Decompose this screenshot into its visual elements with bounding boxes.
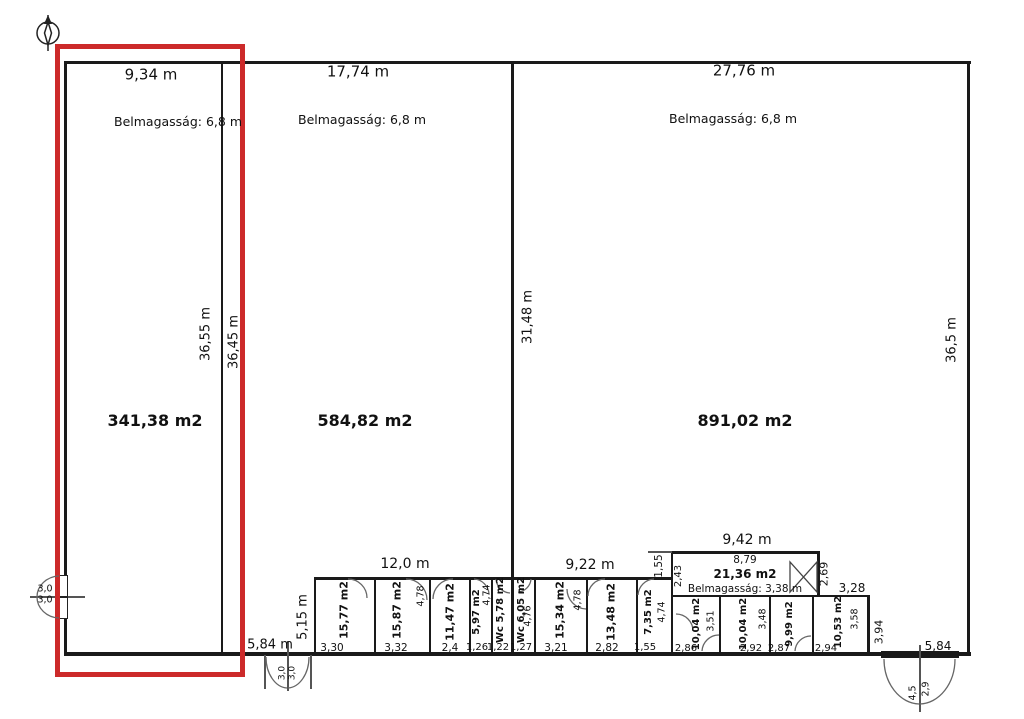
dim-group1: 12,0 m — [380, 557, 429, 571]
dim-right-door-leaf: 4,5 — [908, 685, 918, 700]
dim-depth-right: 36,5 m — [946, 317, 959, 363]
room-depth: 4,74 — [657, 601, 667, 622]
dim-section-mid-width: 17,74 m — [327, 65, 389, 80]
room-width: 1,27 — [510, 643, 532, 653]
dim-right-door-leaf: 2,9 — [921, 681, 931, 696]
dim-mezz-left: 2,43 — [674, 565, 684, 587]
dim-mezz-offset: 1,55 — [654, 554, 665, 577]
dim-gap-top: 3,28 — [839, 582, 866, 594]
ceiling-height-left: Belmagasság: 6,8 m — [114, 116, 242, 129]
dim-mezz-right: 2,69 — [819, 562, 830, 587]
room-width: 3,21 — [544, 643, 567, 654]
room-depth: 3,58 — [850, 608, 860, 629]
room-area: 7,35 m2 — [644, 589, 654, 635]
room-depth: 4,78 — [416, 585, 426, 606]
mezz-area: 21,36 m2 — [714, 568, 777, 580]
room-door-arc — [795, 636, 811, 651]
dim-right-door: 5,84 — [925, 640, 952, 652]
room-width: 1,26 — [466, 643, 488, 653]
dim-section-left-width: 9,34 m — [125, 68, 178, 83]
dim-mezz-width: 9,42 m — [722, 533, 771, 547]
room-door-arc — [702, 635, 719, 651]
dim-south-door-leaf: 3,0 — [289, 666, 298, 680]
dim-south-door-leaf: 3,0 — [279, 666, 288, 680]
ceiling-height-right: Belmagasság: 6,8 m — [669, 113, 797, 126]
room-door-arc — [348, 579, 367, 598]
room-width: 2,86 — [675, 644, 697, 654]
room-width: 1,55 — [634, 643, 656, 653]
dim-west-door-leaf: 3,0 — [37, 584, 52, 594]
room-area: Wc 5,78 m2 — [496, 577, 506, 643]
dim-row-depth: 5,15 m — [297, 594, 310, 640]
room-width: 1,22 — [487, 643, 509, 653]
room-area: 13,48 m2 — [606, 583, 617, 641]
room-width: 2,94 — [815, 644, 837, 654]
room-depth: 4,76 — [523, 605, 533, 626]
dim-section-right-width: 27,76 m — [713, 64, 775, 79]
dim-west-door-leaf: 3,0 — [37, 595, 52, 605]
room-depth: 3,48 — [758, 608, 768, 629]
area-right: 891,02 m2 — [697, 413, 792, 429]
mezz-inner-width: 8,79 — [733, 555, 756, 566]
room-width: 2,82 — [595, 643, 618, 654]
room-area: 9,99 m2 — [785, 601, 795, 647]
room-area: 15,77 m2 — [339, 581, 350, 639]
dim-depth-left-inner: 36,45 m — [228, 315, 241, 369]
room-depth: 4,74 — [482, 584, 492, 605]
mezz-ceiling: Belmagasság: 3,38 m — [688, 584, 802, 595]
room-width: 2,92 — [740, 644, 762, 654]
ceiling-height-mid: Belmagasság: 6,8 m — [298, 114, 426, 127]
room-depth: 3,51 — [706, 610, 716, 631]
dim-gap-depth: 3,94 — [874, 620, 885, 645]
room-area: 15,87 m2 — [392, 581, 403, 639]
area-mid: 584,82 m2 — [317, 413, 412, 429]
room-width: 2,87 — [768, 644, 790, 654]
floor-plan: 9,34 m 17,74 m 27,76 m Belmagasság: 6,8 … — [0, 0, 1024, 719]
room-width: 2,4 — [442, 643, 459, 654]
dim-south-door: 5,84 m — [247, 639, 293, 652]
dim-group2: 9,22 m — [565, 558, 614, 572]
north-arrow-icon — [37, 15, 59, 51]
room-width: 3,32 — [384, 643, 407, 654]
room-door-arc — [588, 579, 605, 596]
dim-depth-mid: 31,48 m — [522, 290, 535, 344]
dim-depth-left-outer: 36,55 m — [200, 307, 213, 361]
symbols-layer — [0, 0, 1024, 719]
area-left: 341,38 m2 — [107, 413, 202, 429]
room-area: 15,34 m2 — [555, 581, 566, 639]
room-area: 10,53 m2 — [834, 596, 844, 649]
room-width: 3,30 — [320, 643, 343, 654]
room-depth: 4,78 — [573, 589, 583, 610]
room-area: 11,47 m2 — [445, 583, 456, 641]
